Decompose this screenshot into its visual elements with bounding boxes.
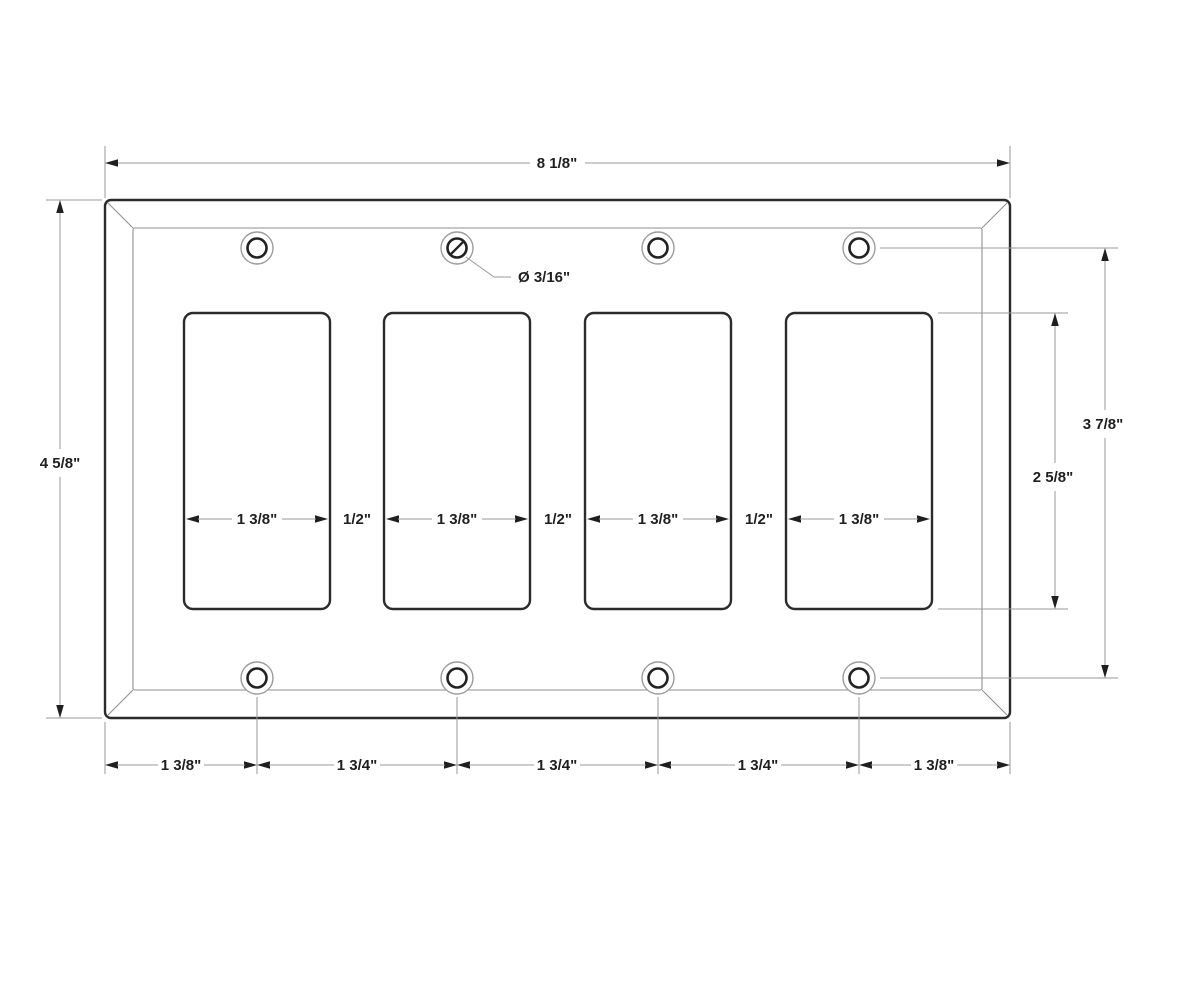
screw-bore — [248, 239, 267, 258]
rocker-cutout-1 — [184, 313, 330, 609]
dim-label-gap: 1/2" — [343, 511, 371, 528]
arrowhead-right — [645, 761, 658, 769]
arrowhead-right — [846, 761, 859, 769]
dim-label-hole-diameter: Ø 3/16" — [518, 269, 570, 286]
dim-label-overall-height: 4 5/8" — [40, 455, 80, 472]
arrowhead-left — [859, 761, 872, 769]
arrowhead-left — [105, 761, 118, 769]
screw-hole-bottom-3 — [642, 662, 674, 694]
rocker-cutout-3 — [585, 313, 731, 609]
dimension-drawing: 8 1/8" 4 5/8" Ø 3/16" 2 5/8" 3 7/8" — [0, 0, 1200, 976]
arrowhead-down — [1051, 596, 1059, 609]
rocker-cutout-2 — [384, 313, 530, 609]
dim-label-bottom-1: 1 3/8" — [161, 757, 201, 774]
screw-hole-bottom-4 — [843, 662, 875, 694]
screw-bore — [448, 669, 467, 688]
screw-hole-top-1 — [241, 232, 273, 264]
dim-label-gap: 1/2" — [544, 511, 572, 528]
dim-label-bottom-5: 1 3/8" — [914, 757, 954, 774]
screw-bore — [649, 669, 668, 688]
drawing-canvas: 8 1/8" 4 5/8" Ø 3/16" 2 5/8" 3 7/8" — [0, 0, 1200, 976]
screw-hole-top-4 — [843, 232, 875, 264]
arrowhead-up — [1101, 248, 1109, 261]
arrowhead-left — [257, 761, 270, 769]
dim-label-bottom-3: 1 3/4" — [537, 757, 577, 774]
rocker-cutout-4 — [786, 313, 932, 609]
screw-bore — [248, 669, 267, 688]
dim-label-cutout-height: 2 5/8" — [1033, 469, 1073, 486]
arrowhead-down — [56, 705, 64, 718]
arrowhead-right — [244, 761, 257, 769]
dim-label-cutout-width: 1 3/8" — [839, 511, 879, 528]
dim-label-cutout-width: 1 3/8" — [237, 511, 277, 528]
screw-hole-bottom-2 — [441, 662, 473, 694]
dim-label-gap: 1/2" — [745, 511, 773, 528]
arrowhead-up — [56, 200, 64, 213]
dim-label-cutout-width: 1 3/8" — [638, 511, 678, 528]
arrowhead-left — [658, 761, 671, 769]
dim-overall-height: 4 5/8" — [40, 200, 102, 718]
arrowhead-right — [444, 761, 457, 769]
arrowhead-down — [1101, 665, 1109, 678]
dim-overall-width: 8 1/8" — [105, 146, 1010, 198]
arrowhead-up — [1051, 313, 1059, 326]
screw-bore — [850, 239, 869, 258]
screw-hole-top-2 — [441, 232, 473, 264]
dim-label-cutout-width: 1 3/8" — [437, 511, 477, 528]
dim-label-bottom-4: 1 3/4" — [738, 757, 778, 774]
screw-bore — [850, 669, 869, 688]
arrowhead-left — [105, 159, 118, 167]
dim-label-overall-width: 8 1/8" — [537, 155, 577, 172]
arrowhead-left — [457, 761, 470, 769]
screw-hole-bottom-1 — [241, 662, 273, 694]
dim-label-screw-span: 3 7/8" — [1083, 416, 1123, 433]
screw-hole-top-3 — [642, 232, 674, 264]
screw-bore — [649, 239, 668, 258]
dim-label-bottom-2: 1 3/4" — [337, 757, 377, 774]
arrowhead-right — [997, 761, 1010, 769]
arrowhead-right — [997, 159, 1010, 167]
